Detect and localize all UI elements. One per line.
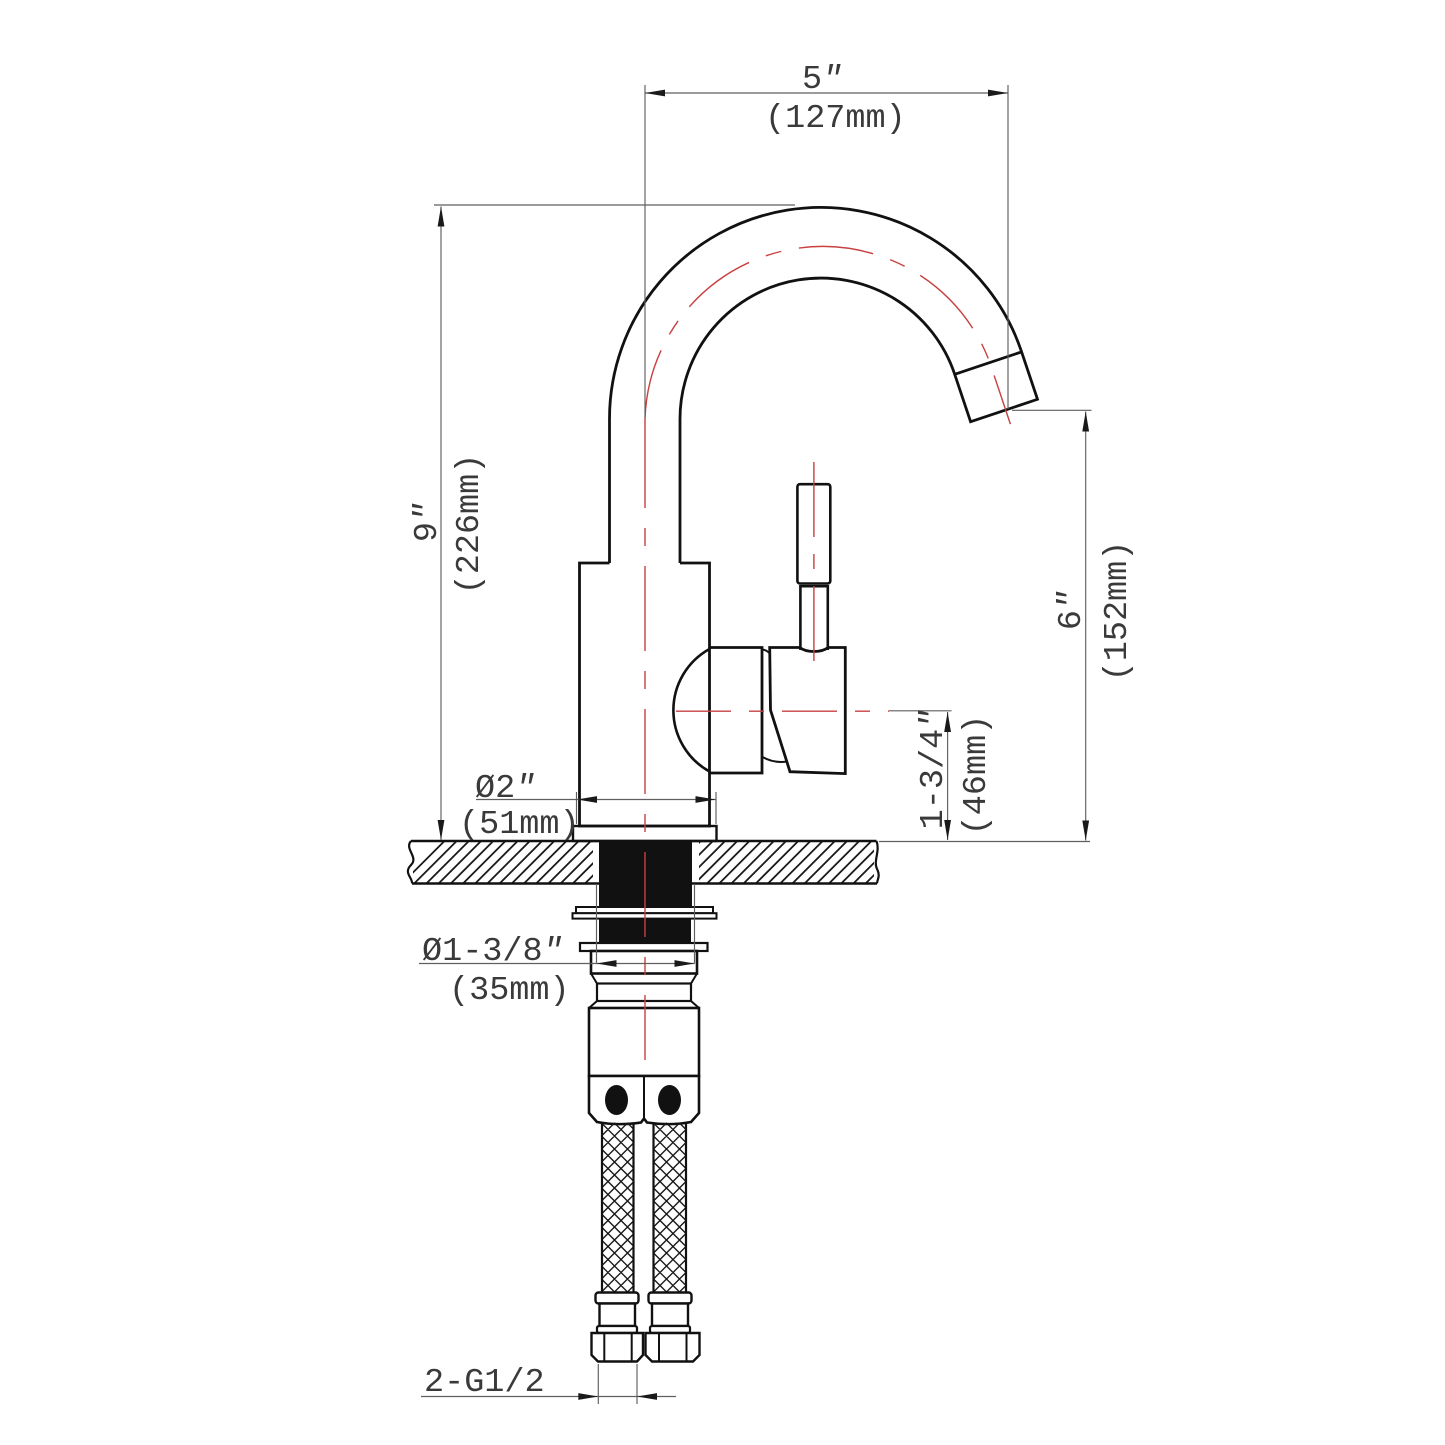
- svg-text:(152mm): (152mm): [1099, 541, 1137, 682]
- svg-text:Ø2″: Ø2″: [475, 770, 535, 808]
- svg-text:2-G1/2: 2-G1/2: [424, 1364, 545, 1402]
- svg-text:6″: 6″: [1053, 590, 1091, 630]
- svg-text:9″: 9″: [409, 502, 447, 542]
- svg-text:1-3/4″: 1-3/4″: [915, 709, 953, 830]
- svg-text:Ø1-3/8″: Ø1-3/8″: [422, 933, 563, 971]
- svg-text:5″: 5″: [802, 61, 842, 99]
- svg-text:(51mm): (51mm): [459, 806, 580, 844]
- svg-text:(226mm): (226mm): [451, 454, 489, 595]
- svg-text:(127mm): (127mm): [765, 100, 906, 138]
- svg-text:(35mm): (35mm): [449, 972, 570, 1010]
- svg-text:(46mm): (46mm): [958, 715, 996, 836]
